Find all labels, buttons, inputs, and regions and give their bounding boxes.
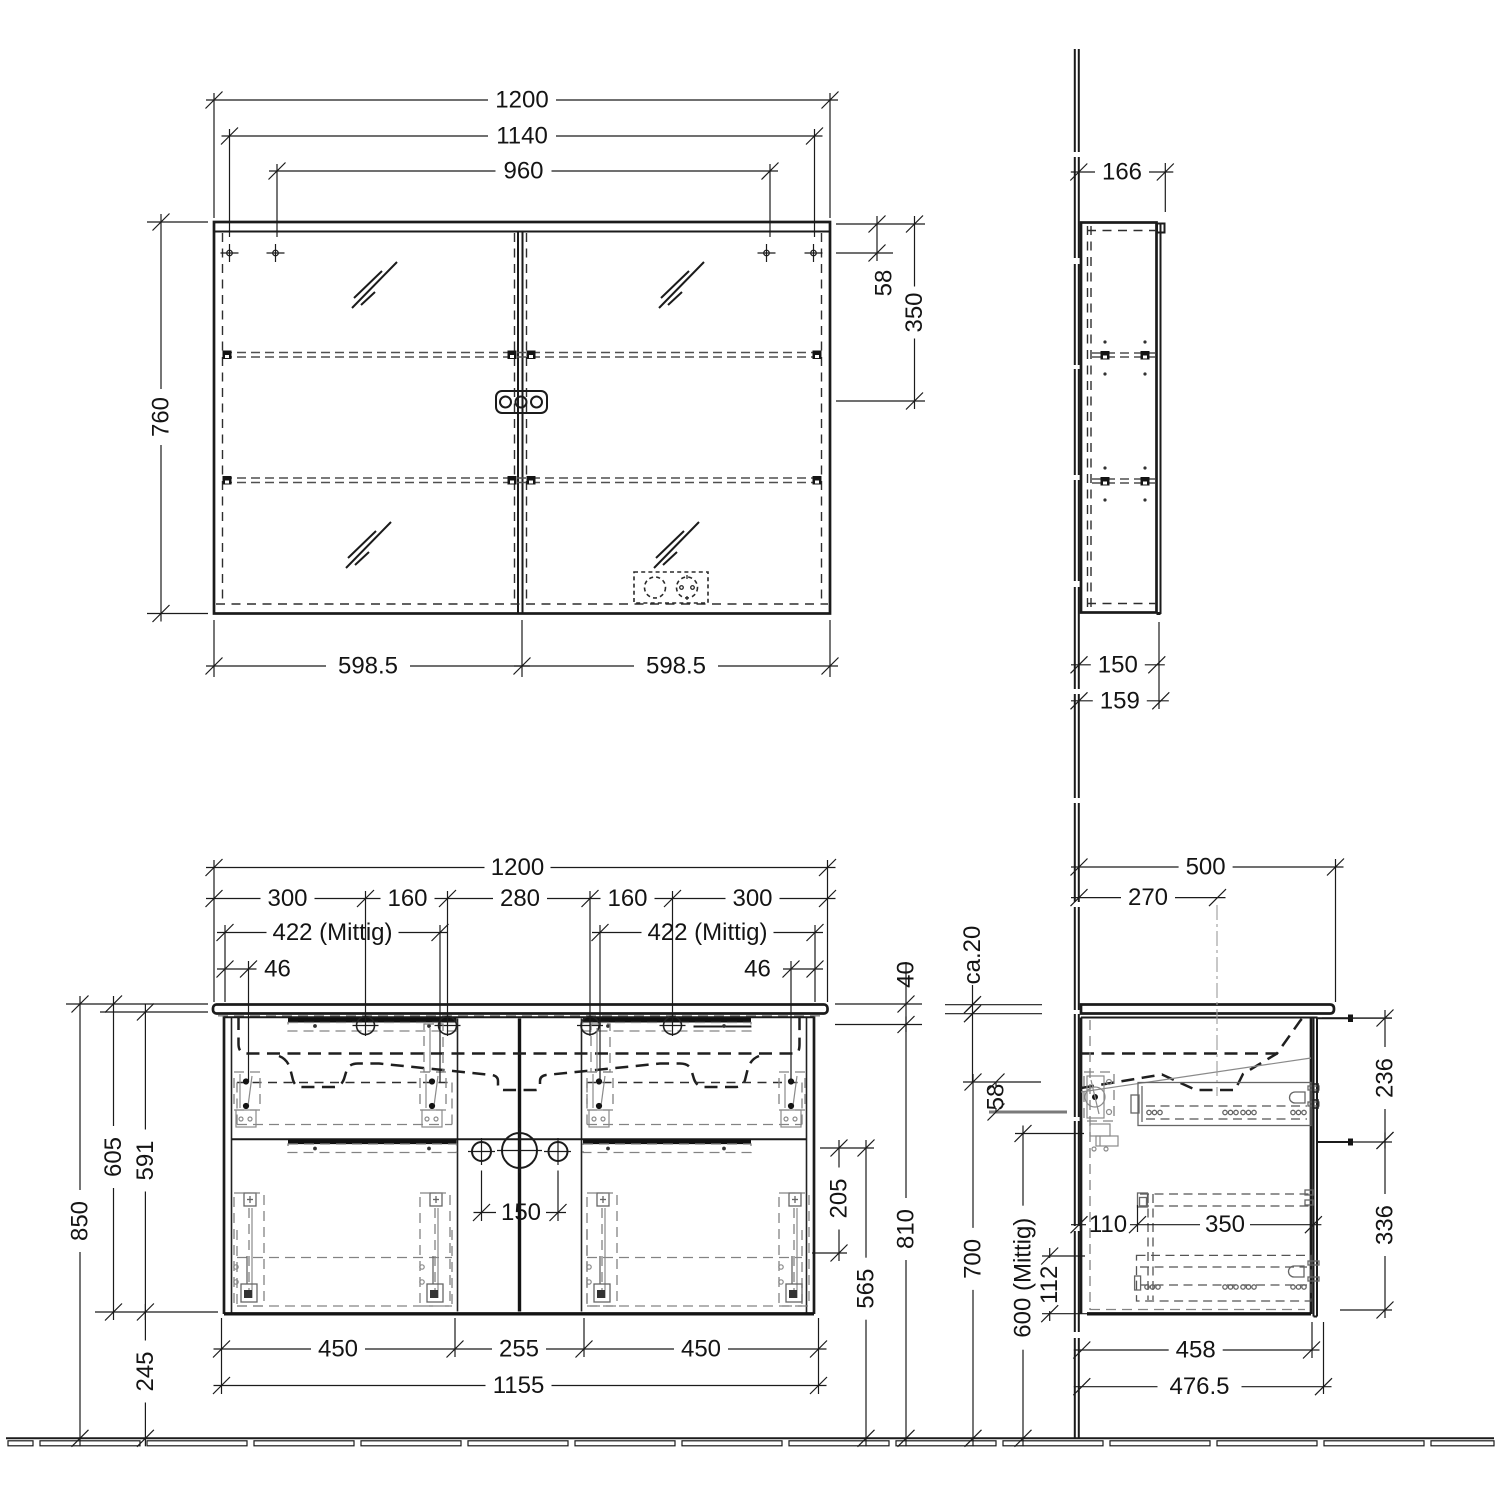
svg-text:350: 350 [901, 292, 928, 332]
svg-text:46: 46 [744, 956, 771, 983]
svg-text:166: 166 [1102, 159, 1142, 186]
svg-text:850: 850 [67, 1201, 94, 1241]
svg-text:422 (Mittig): 422 (Mittig) [647, 919, 767, 946]
svg-text:500: 500 [1186, 854, 1226, 881]
svg-text:760: 760 [148, 397, 175, 437]
svg-text:565: 565 [853, 1269, 880, 1309]
svg-text:1155: 1155 [493, 1372, 545, 1399]
svg-text:810: 810 [893, 1209, 920, 1249]
svg-text:450: 450 [318, 1336, 358, 1363]
svg-text:150: 150 [501, 1199, 541, 1226]
svg-text:1200: 1200 [491, 854, 544, 881]
svg-text:598.5: 598.5 [338, 653, 398, 680]
svg-text:58: 58 [983, 1084, 1010, 1111]
svg-text:159: 159 [1100, 687, 1140, 714]
svg-text:112: 112 [1036, 1266, 1063, 1304]
svg-text:700: 700 [960, 1239, 987, 1279]
svg-text:476.5: 476.5 [1169, 1373, 1229, 1400]
svg-text:458: 458 [1176, 1337, 1216, 1364]
svg-text:255: 255 [499, 1336, 539, 1363]
svg-text:591: 591 [132, 1140, 159, 1180]
svg-text:350: 350 [1205, 1211, 1245, 1238]
svg-text:450: 450 [681, 1336, 721, 1363]
svg-text:150: 150 [1098, 651, 1138, 678]
svg-text:58: 58 [871, 270, 898, 297]
svg-text:605: 605 [100, 1137, 127, 1177]
svg-text:422 (Mittig): 422 (Mittig) [272, 919, 392, 946]
svg-text:ca.20: ca.20 [959, 926, 986, 985]
svg-text:600 (Mittig): 600 (Mittig) [1010, 1218, 1037, 1338]
svg-text:110: 110 [1089, 1211, 1127, 1238]
svg-text:205: 205 [826, 1178, 853, 1218]
svg-text:300: 300 [732, 885, 772, 912]
svg-text:236: 236 [1372, 1058, 1399, 1098]
svg-text:270: 270 [1128, 884, 1168, 911]
svg-text:598.5: 598.5 [646, 653, 706, 680]
svg-text:46: 46 [264, 956, 291, 983]
svg-text:960: 960 [503, 158, 543, 185]
svg-text:40: 40 [893, 961, 920, 988]
svg-text:300: 300 [267, 885, 307, 912]
svg-text:160: 160 [387, 885, 427, 912]
svg-text:1140: 1140 [496, 123, 548, 150]
svg-text:336: 336 [1372, 1205, 1399, 1245]
svg-text:160: 160 [607, 885, 647, 912]
svg-text:245: 245 [132, 1351, 159, 1391]
svg-text:1200: 1200 [495, 87, 548, 114]
svg-text:280: 280 [500, 885, 540, 912]
